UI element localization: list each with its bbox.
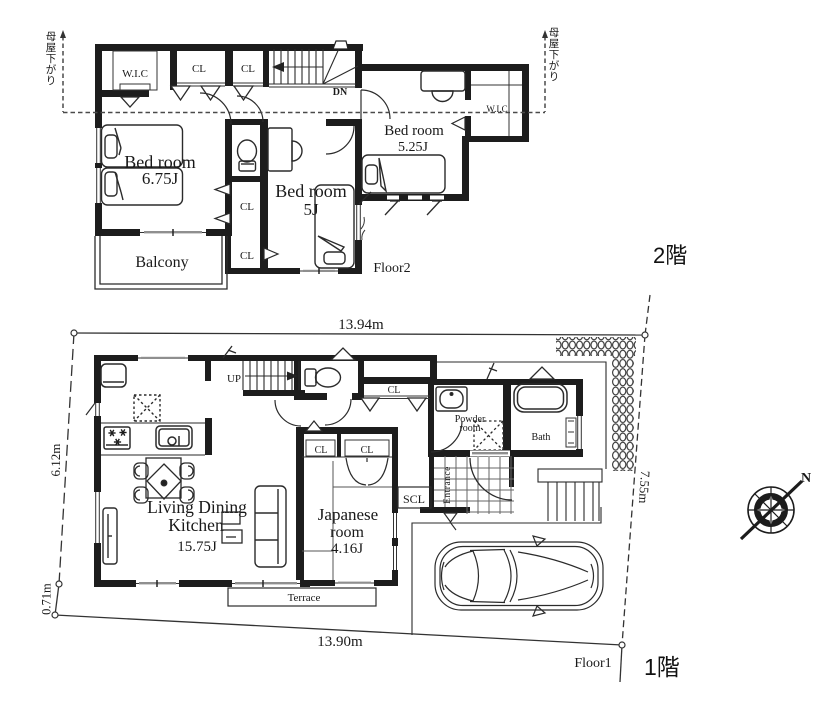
- svg-text:5.25J: 5.25J: [398, 140, 429, 155]
- svg-text:Japanese: Japanese: [318, 505, 378, 524]
- svg-text:1階: 1階: [644, 654, 680, 680]
- svg-text:CL: CL: [240, 201, 254, 213]
- svg-text:N: N: [801, 471, 811, 486]
- svg-text:Kitchen: Kitchen: [168, 515, 224, 535]
- svg-text:CL: CL: [240, 250, 254, 262]
- svg-text:CL: CL: [315, 445, 328, 456]
- svg-text:Floor1: Floor1: [574, 656, 611, 671]
- svg-text:母屋下がり: 母屋下がり: [549, 27, 560, 83]
- svg-text:DN: DN: [333, 87, 348, 98]
- svg-text:0.71m: 0.71m: [40, 583, 54, 615]
- svg-text:Floor2: Floor2: [373, 261, 410, 276]
- svg-text:UP: UP: [227, 373, 241, 385]
- svg-text:7.55m: 7.55m: [636, 470, 653, 504]
- svg-text:W.I.C: W.I.C: [122, 68, 148, 80]
- svg-text:Bed room: Bed room: [275, 181, 347, 201]
- svg-text:CL: CL: [192, 63, 206, 75]
- svg-text:room: room: [330, 524, 364, 541]
- svg-text:15.75J: 15.75J: [177, 539, 217, 555]
- svg-text:6.12m: 6.12m: [48, 444, 63, 477]
- svg-text:Balcony: Balcony: [135, 254, 188, 271]
- svg-text:Bed room: Bed room: [384, 123, 444, 139]
- svg-text:Bath: Bath: [532, 432, 551, 443]
- svg-text:母屋下がり: 母屋下がり: [46, 31, 57, 87]
- svg-text:Living Dining: Living Dining: [147, 497, 247, 517]
- svg-text:13.94m: 13.94m: [338, 317, 384, 333]
- svg-text:W.I.C: W.I.C: [486, 104, 507, 114]
- svg-text:13.90m: 13.90m: [317, 634, 363, 650]
- svg-text:Entrance: Entrance: [443, 466, 453, 504]
- svg-text:2階: 2階: [653, 243, 687, 268]
- svg-text:CL: CL: [361, 445, 374, 456]
- svg-text:CL: CL: [388, 385, 401, 396]
- svg-text:4.16J: 4.16J: [331, 541, 363, 557]
- svg-text:5J: 5J: [303, 200, 319, 219]
- svg-text:6.75J: 6.75J: [142, 169, 179, 188]
- svg-text:Terrace: Terrace: [288, 592, 321, 604]
- svg-text:SCL: SCL: [403, 492, 425, 506]
- svg-text:CL: CL: [241, 63, 255, 75]
